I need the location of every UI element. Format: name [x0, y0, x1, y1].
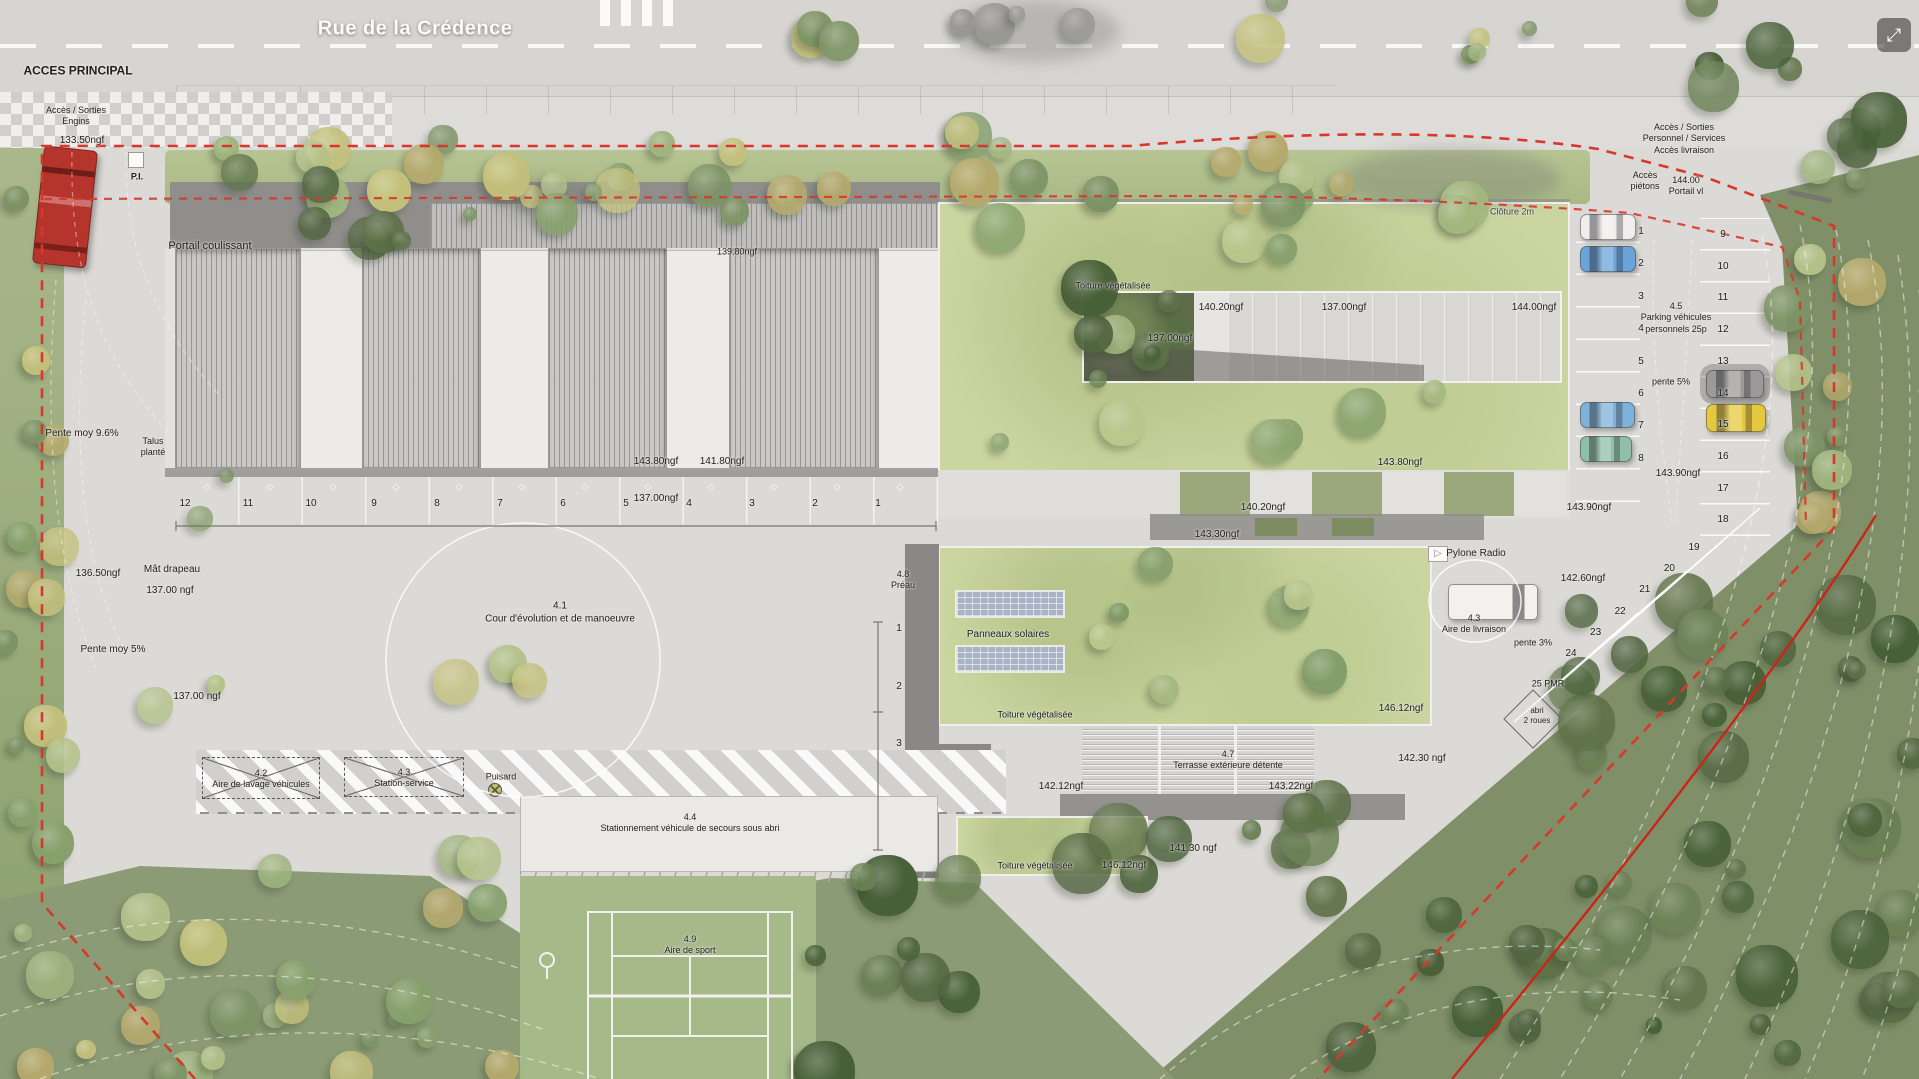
road	[0, 0, 1919, 96]
puisard-icon	[488, 783, 502, 797]
building-south-shadow	[165, 468, 940, 477]
radio-mast-icon: ▷	[1428, 546, 1448, 562]
vehicle-hall-roof-1	[175, 248, 301, 468]
car-gray-14	[1706, 370, 1764, 398]
roof-court-3	[667, 250, 729, 468]
apron-bay-separators	[176, 477, 938, 525]
solar-panels-1	[955, 590, 1065, 618]
fullscreen-button[interactable]: ⤢	[1877, 18, 1911, 52]
car-blue-7	[1580, 402, 1635, 428]
wash-area-box	[202, 757, 320, 799]
green-roof-lower	[938, 546, 1432, 726]
vehicle-hall-roof-2	[362, 248, 481, 468]
vehicle-hall-roof-3	[548, 248, 667, 468]
walkway-planter-b	[1332, 518, 1374, 536]
car-white-1	[1580, 214, 1636, 240]
terrace-divider-2	[1234, 726, 1237, 796]
checker-transition	[0, 92, 392, 150]
terrace-divider-1	[1158, 726, 1161, 796]
solar-panels-2	[955, 645, 1065, 673]
crosswalk	[600, 0, 678, 26]
vehicle-hall-roof-4	[729, 248, 879, 468]
car-yellow-15	[1706, 404, 1766, 432]
terrace-deck	[1082, 726, 1314, 796]
roof-court-4	[879, 250, 940, 468]
walkway-planters	[1180, 472, 1566, 516]
road-centerline	[0, 44, 1919, 48]
walkway-planter-a	[1255, 518, 1297, 536]
fuel-station-box	[344, 757, 464, 797]
site-plan-canvas: ▷	[0, 0, 1919, 1079]
green-roof-small	[956, 816, 1148, 876]
roof-court-2	[481, 250, 548, 468]
hydrant-pi-icon	[128, 152, 144, 168]
sport-turf	[520, 876, 816, 1079]
car-teal-8	[1580, 436, 1632, 462]
roof-court-1	[301, 250, 362, 468]
delivery-van	[1448, 584, 1538, 620]
fullscreen-icon: ⤢	[1887, 25, 1901, 46]
walkway-lower-shadow	[1150, 514, 1484, 540]
rescue-shed	[520, 796, 938, 872]
car-blue-2	[1580, 246, 1636, 272]
building-north-wing-roof	[430, 203, 940, 249]
